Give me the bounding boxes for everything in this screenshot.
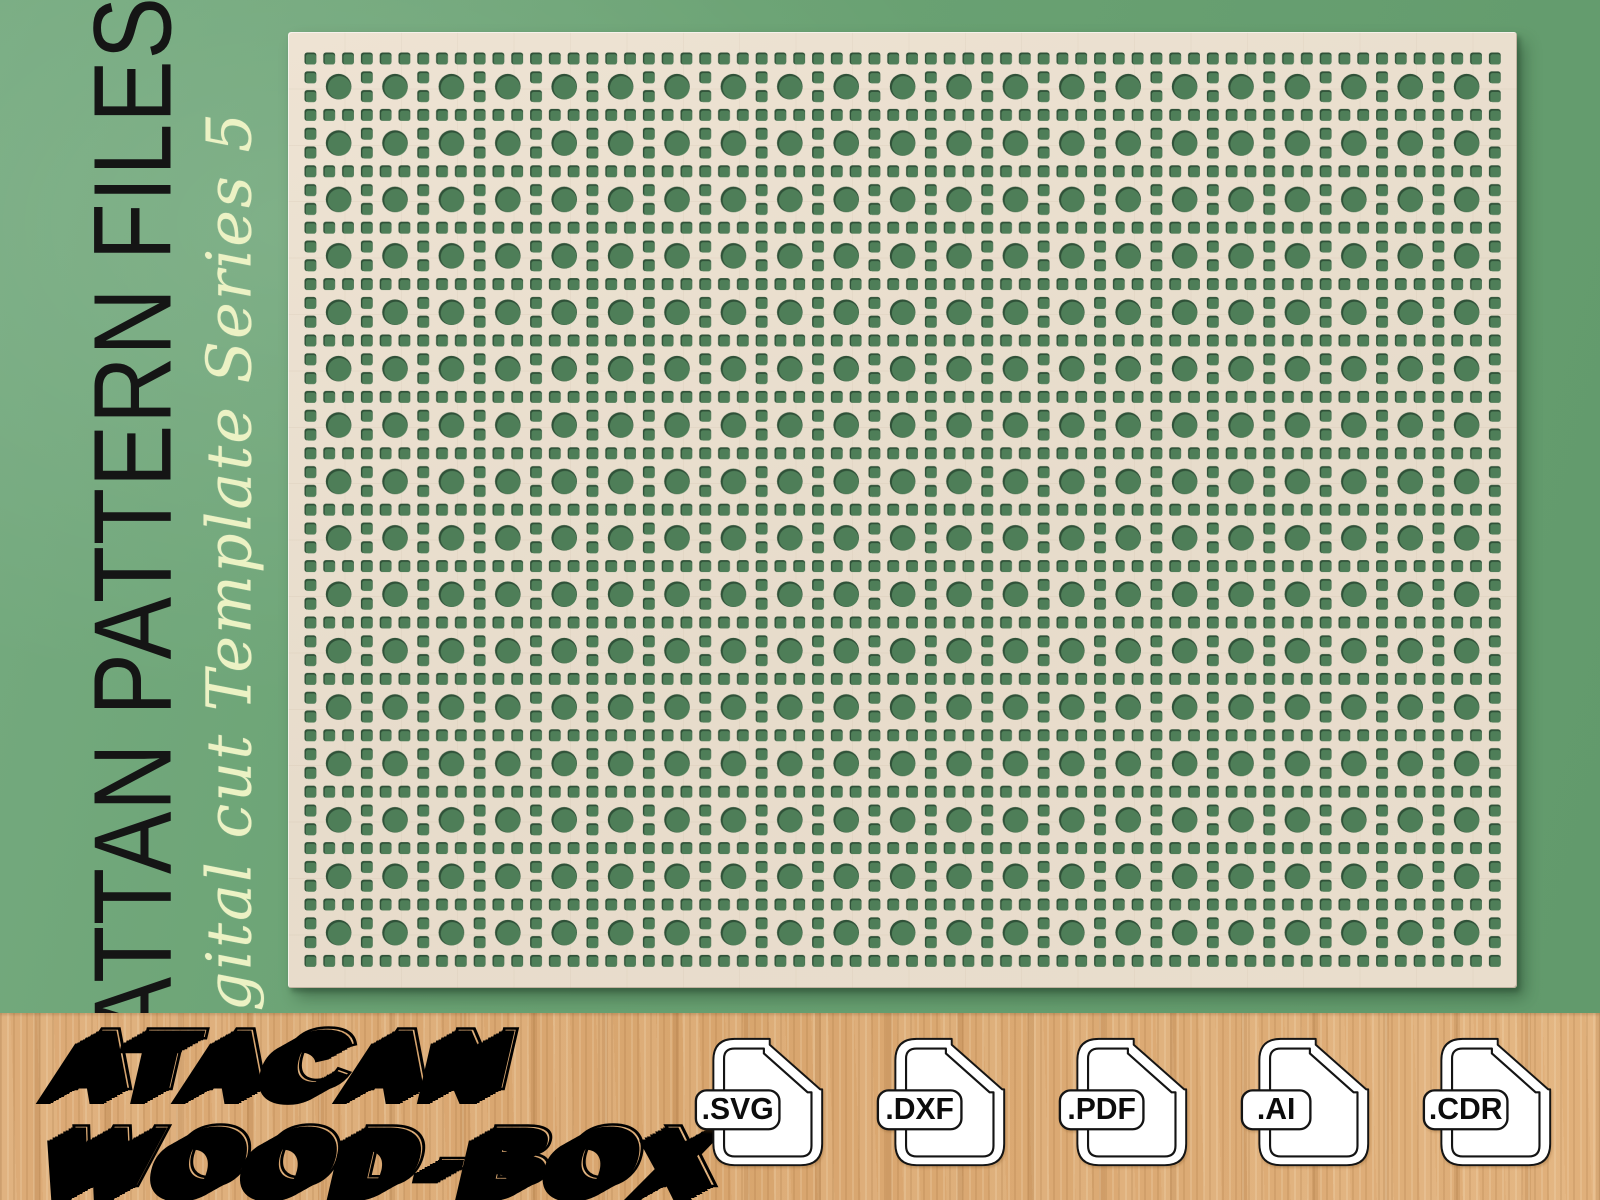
file-format-badges: .SVG.DXF.PDF.AI.CDR — [692, 1035, 1556, 1171]
product-cover: RATTAN PATTERN FILES Digital cut Templat… — [0, 0, 1600, 1200]
page-title: RATTAN PATTERN FILES — [70, 0, 197, 1108]
brand-logo-line1: ATACAN — [58, 1021, 743, 1097]
green-background: RATTAN PATTERN FILES Digital cut Templat… — [0, 0, 1600, 1013]
pattern-area — [301, 49, 1504, 971]
format-label: .DXF — [885, 1093, 954, 1126]
format-label: .CDR — [1429, 1093, 1503, 1126]
footer-bar: ATACAN WOOD-BOX .SVG.DXF.PDF.AI.CDR — [0, 1013, 1600, 1200]
format-label: .SVG — [702, 1093, 774, 1126]
format-label: .AI — [1257, 1093, 1295, 1126]
rattan-pattern-cutouts — [288, 32, 1517, 988]
file-format-icon-ai: .AI — [1238, 1035, 1374, 1171]
brand-logo: ATACAN WOOD-BOX — [58, 1021, 634, 1193]
brand-logo-line2: WOOD-BOX — [58, 1118, 743, 1194]
file-format-icon-cdr: .CDR — [1420, 1035, 1556, 1171]
format-label: .PDF — [1067, 1093, 1136, 1126]
page-subtitle: Digital cut Template Series 5 — [193, 111, 266, 1085]
file-format-icon-dxf: .DXF — [874, 1035, 1010, 1171]
file-format-icon-pdf: .PDF — [1056, 1035, 1192, 1171]
file-format-icon-svg: .SVG — [692, 1035, 828, 1171]
rattan-panel — [288, 32, 1517, 988]
